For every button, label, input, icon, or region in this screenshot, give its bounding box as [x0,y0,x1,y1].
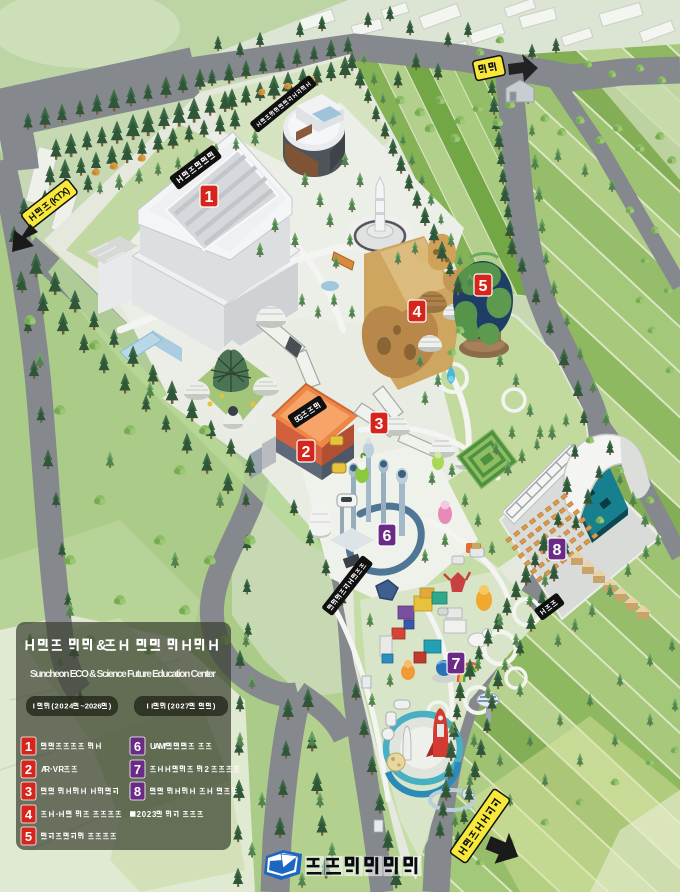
svg-text:1: 1 [25,739,32,754]
svg-text:Suncheon ECO & Science Future: Suncheon ECO & Science Future Education … [30,669,216,680]
svg-text:I: I [33,702,35,711]
svg-text:5: 5 [479,278,488,295]
svg-text:3: 3 [25,784,32,799]
svg-text:2: 2 [205,765,210,774]
svg-text:2023: 2023 [137,810,157,819]
svg-text:8: 8 [134,784,141,799]
svg-text:4: 4 [25,807,33,822]
svg-text:AR: AR [41,765,50,774]
svg-text:VR: VR [53,765,65,774]
svg-text:3: 3 [375,416,384,433]
svg-text:&: & [96,638,107,654]
svg-text:4: 4 [413,304,422,321]
svg-text:(2027: (2027 [168,702,190,711]
svg-text:7: 7 [452,656,461,673]
svg-text:1: 1 [205,189,214,206]
svg-text:6: 6 [134,739,141,754]
svg-text:~2026: ~2026 [80,702,101,711]
svg-text:2: 2 [302,444,311,461]
svg-text:8: 8 [553,542,562,559]
svg-text:7: 7 [134,762,141,777]
svg-text:UAM/: UAM/ [150,742,167,751]
svg-text:6: 6 [383,528,392,545]
svg-text:5: 5 [25,829,32,844]
svg-text:(2024: (2024 [51,702,74,711]
svg-text:2: 2 [25,762,32,777]
